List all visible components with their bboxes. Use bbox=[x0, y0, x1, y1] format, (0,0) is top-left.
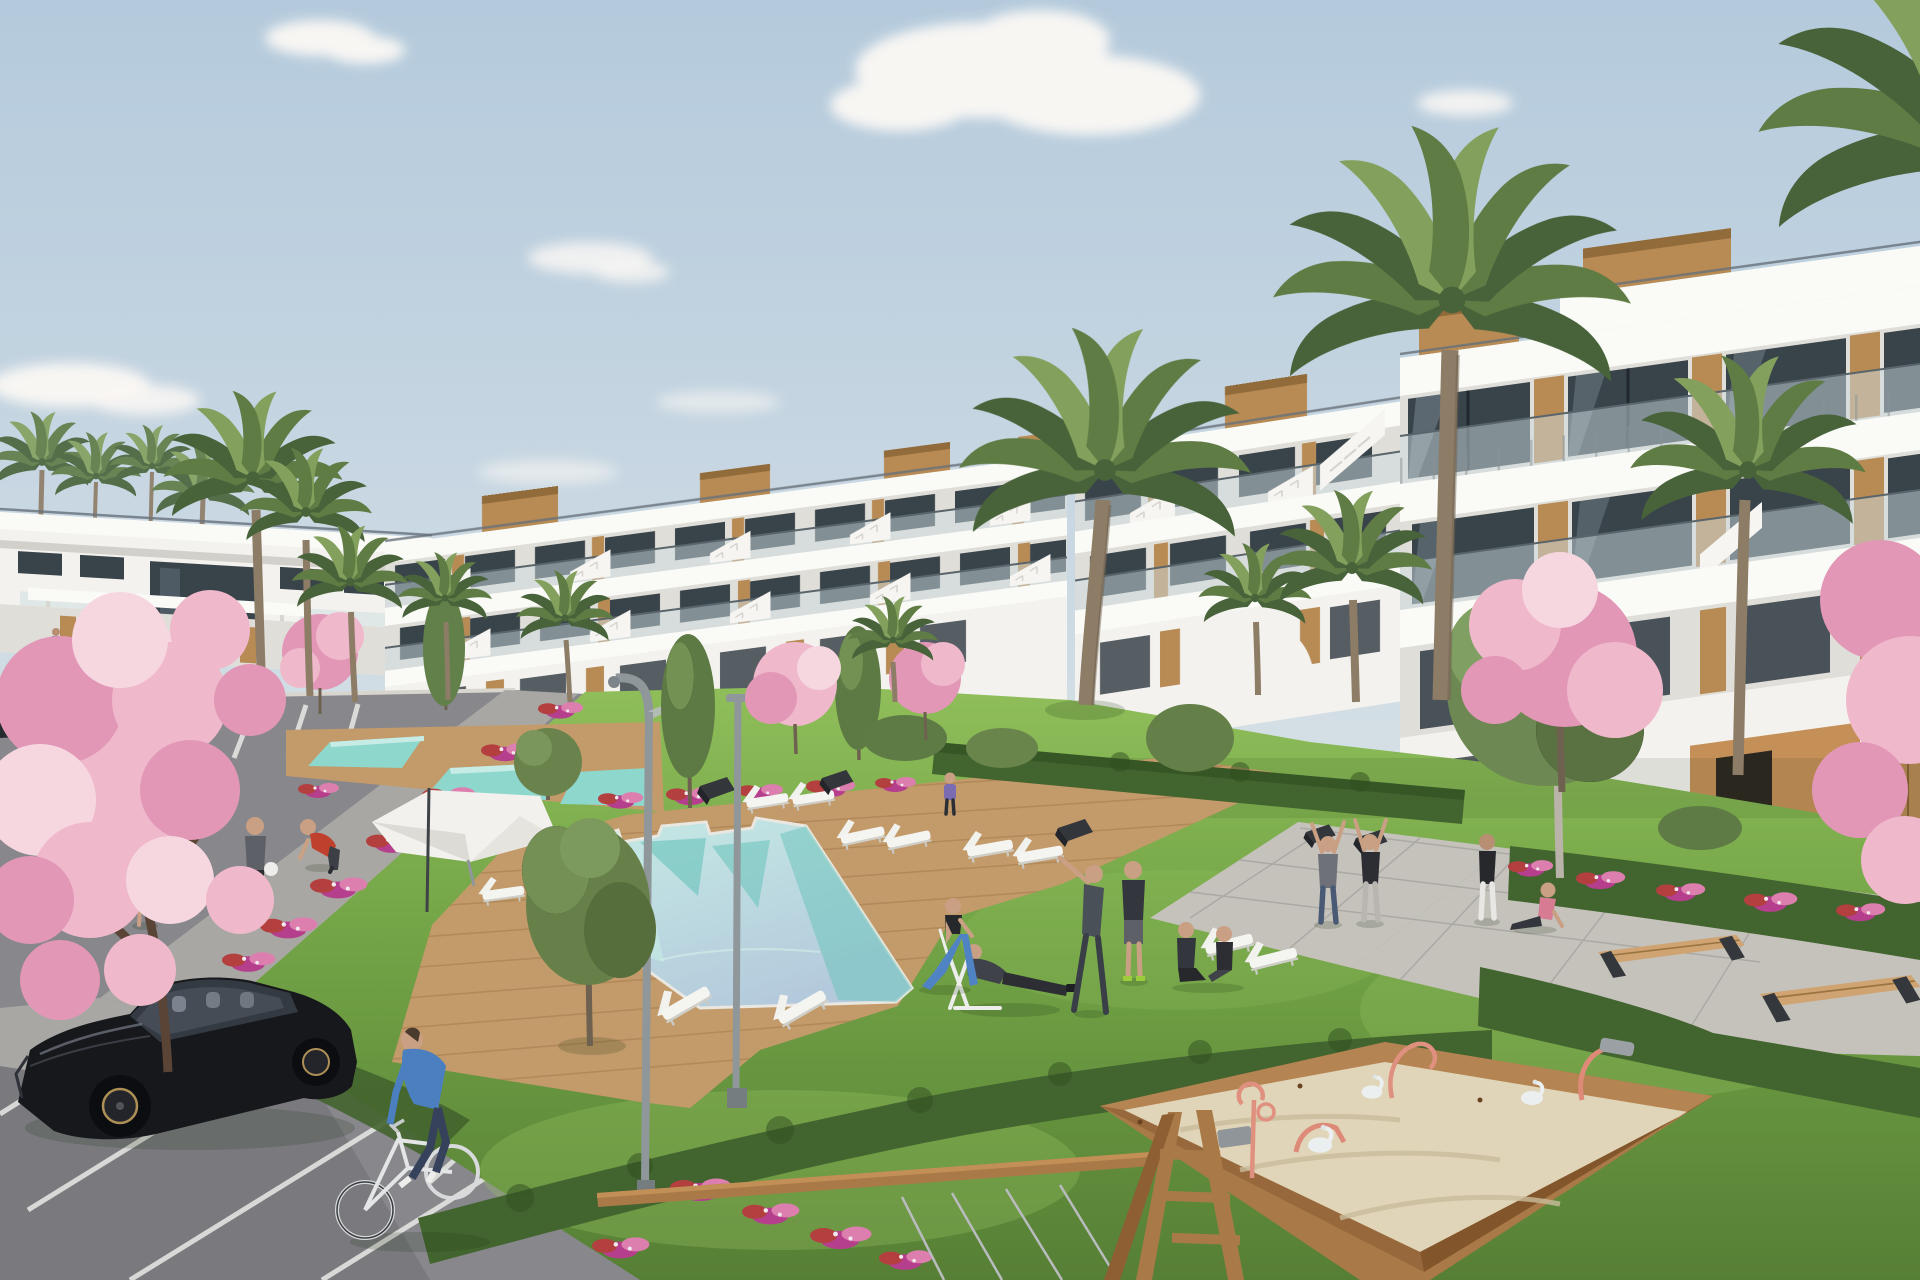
render-stage bbox=[0, 0, 1920, 1280]
net-pole bbox=[427, 788, 429, 912]
resort-render-image bbox=[0, 0, 1920, 1280]
cloud-small-right bbox=[1417, 90, 1513, 116]
